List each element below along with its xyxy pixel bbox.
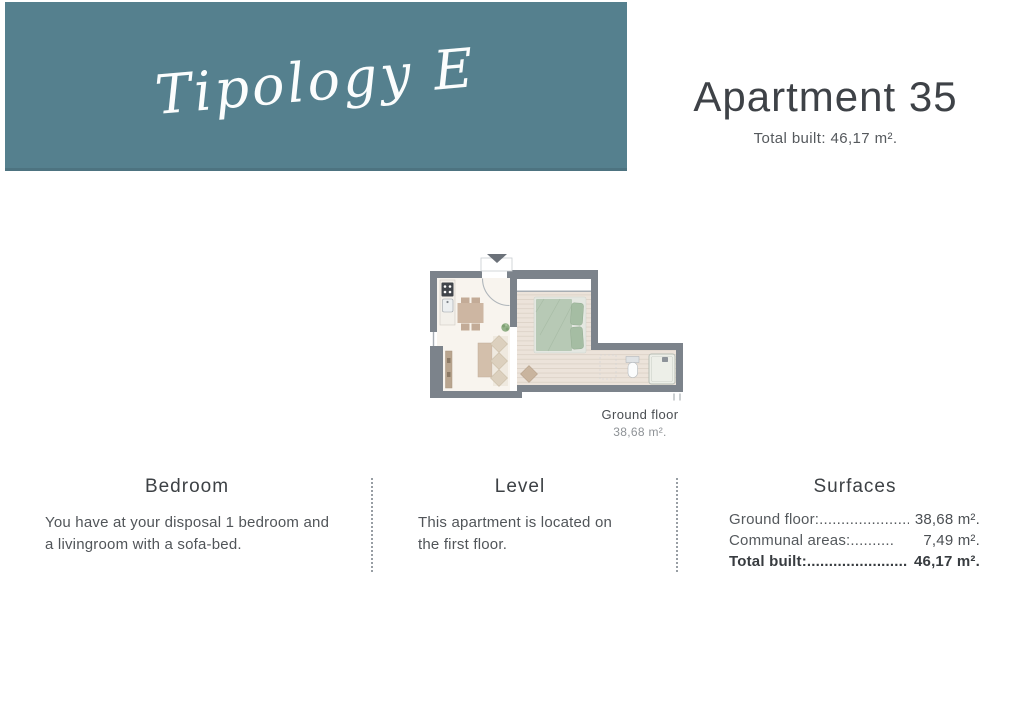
dotted-divider <box>676 478 678 572</box>
level-heading: Level <box>380 476 660 498</box>
bedroom-heading: Bedroom <box>26 476 348 498</box>
dotted-divider <box>371 478 373 572</box>
surface-value: 46,17 m². <box>908 553 980 570</box>
kitchen-counter <box>440 280 455 325</box>
plan-caption-floor: Ground floor <box>555 407 725 422</box>
plan-caption-area: 38,68 m². <box>555 425 725 439</box>
dimension-ticks <box>674 394 681 401</box>
surface-label: Communal areas:.......... <box>729 532 894 549</box>
sofa <box>491 336 508 387</box>
bedroom-window <box>517 279 591 292</box>
level-description-line2: the first floor. <box>418 534 660 556</box>
bedroom-description: You have at your disposal 1 bedroom and … <box>45 512 348 556</box>
left-wall-window <box>430 332 437 346</box>
brochure-page: Tipology E Apartment 35 Total built: 46,… <box>0 0 1024 724</box>
apartment-title: Apartment 35 <box>627 76 1024 118</box>
surface-row-communal-areas: Communal areas:.......... 7,49 m². <box>729 532 980 553</box>
sideboard <box>446 351 453 388</box>
section-level: Level This apartment is located on the f… <box>380 476 660 556</box>
toilet <box>626 357 639 378</box>
coffee-table <box>478 343 492 377</box>
bedroom-description-line1: You have at your disposal 1 bedroom and <box>45 512 348 534</box>
surface-row-ground-floor: Ground floor:...................... 38,6… <box>729 511 980 532</box>
section-surfaces: Surfaces Ground floor:..................… <box>700 476 1010 574</box>
surface-value: 7,49 m². <box>917 532 980 549</box>
surface-label: Ground floor:...................... <box>729 511 909 528</box>
bedroom-description-line2: a livingroom with a sofa-bed. <box>45 534 348 556</box>
level-description: This apartment is located on the first f… <box>418 512 660 556</box>
surface-value: 38,68 m². <box>909 511 980 528</box>
plan-caption: Ground floor 38,68 m². <box>555 407 725 439</box>
floor-plan <box>400 248 700 406</box>
level-description-line1: This apartment is located on <box>418 512 660 534</box>
shower <box>649 354 675 384</box>
surface-label: Total built:........................... <box>729 553 908 570</box>
surfaces-heading: Surfaces <box>700 476 1010 498</box>
total-built-subtitle: Total built: 46,17 m². <box>627 130 1024 147</box>
typology-banner: Tipology E <box>5 2 627 171</box>
bed <box>534 297 586 353</box>
section-bedroom: Bedroom You have at your disposal 1 bedr… <box>26 476 348 556</box>
surfaces-table: Ground floor:...................... 38,6… <box>729 511 980 574</box>
plant <box>501 323 509 331</box>
surface-row-total-built: Total built:........................... … <box>729 553 980 574</box>
typology-title: Tipology E <box>153 36 479 127</box>
apartment-header: Apartment 35 Total built: 46,17 m². <box>627 76 1024 147</box>
